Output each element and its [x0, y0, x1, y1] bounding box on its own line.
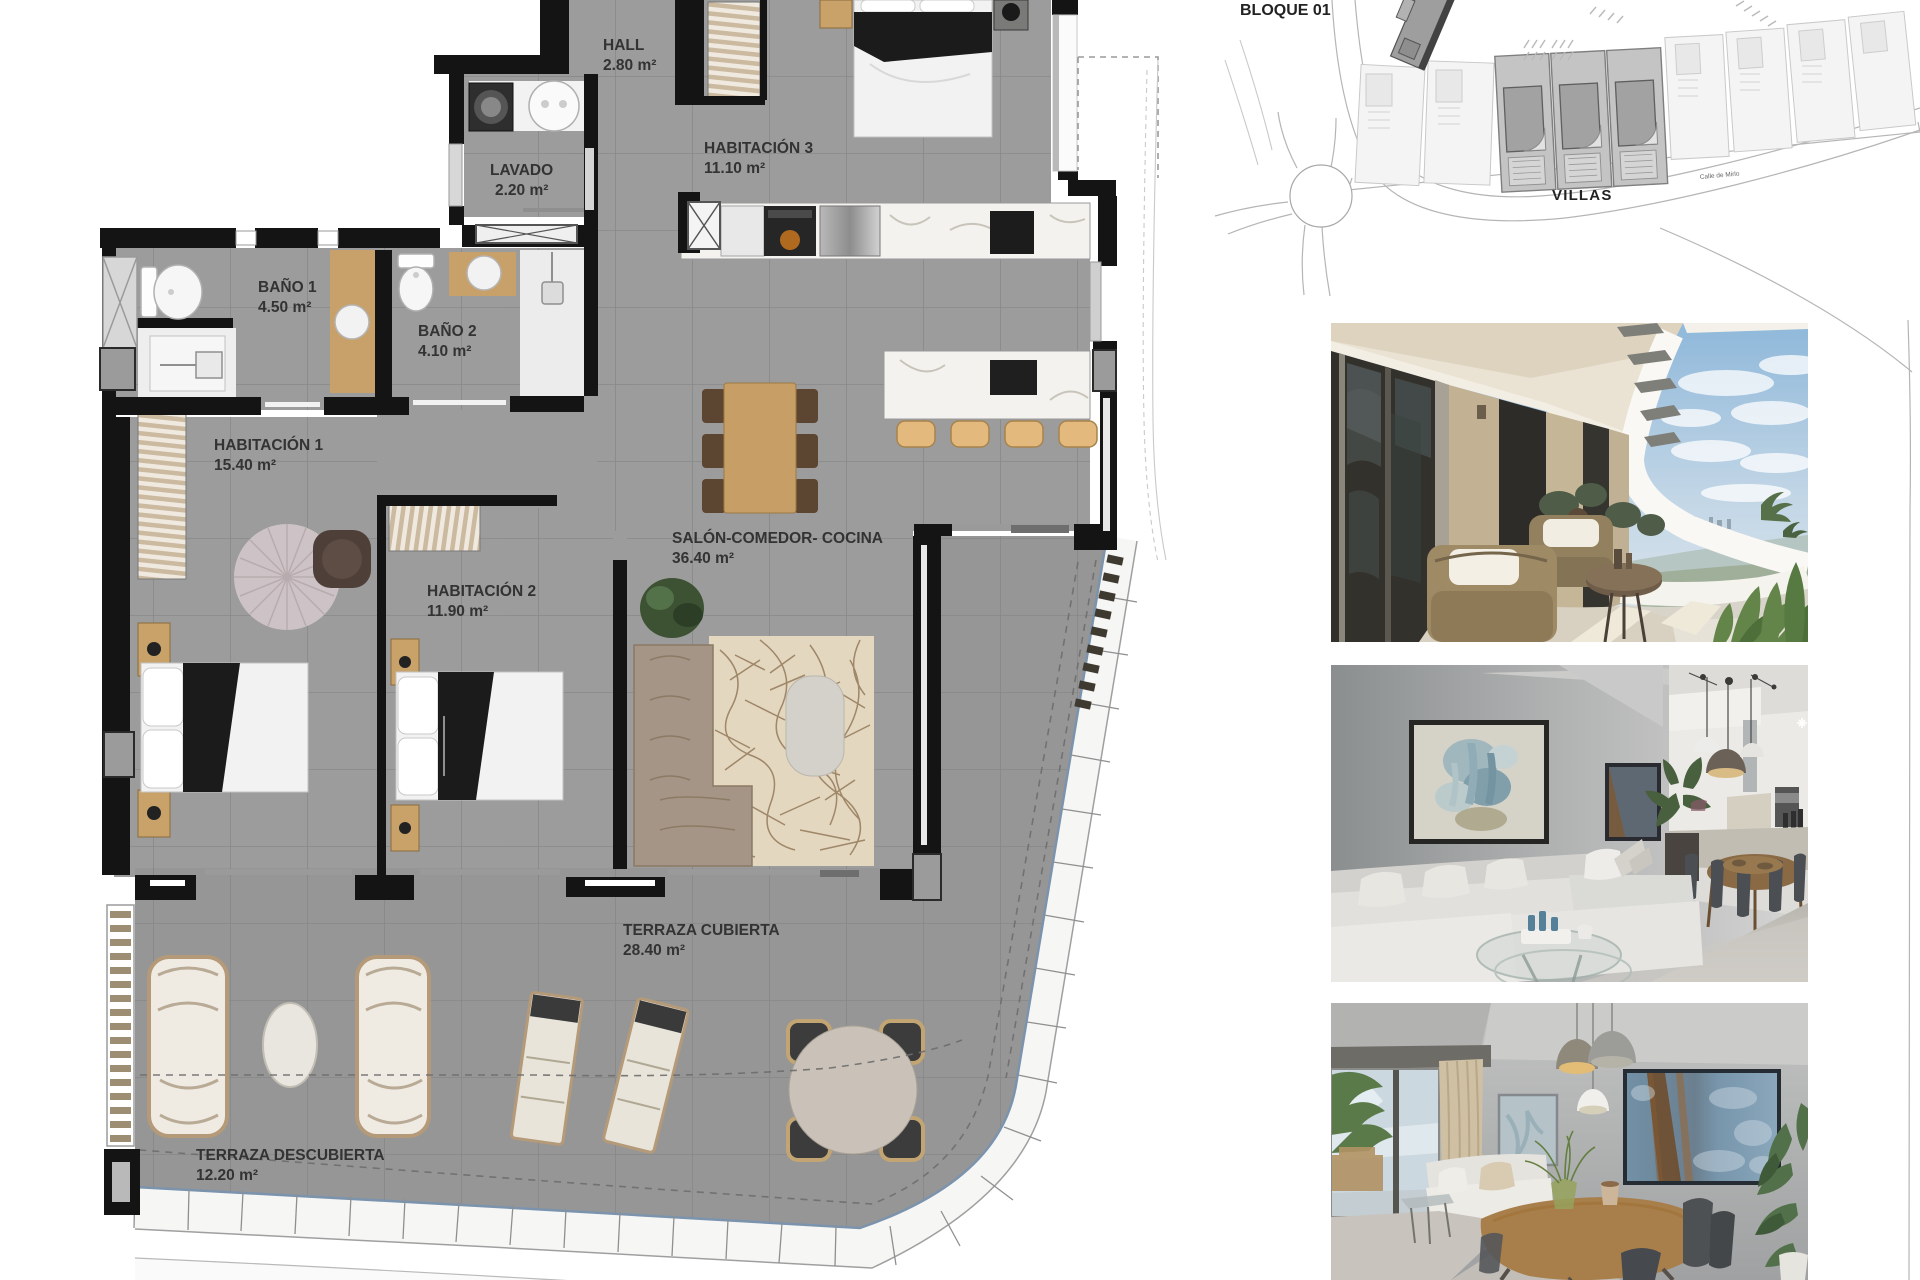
svg-text:TERRAZA CUBIERTA: TERRAZA CUBIERTA: [623, 922, 780, 939]
svg-text:BAÑO 1: BAÑO 1: [258, 278, 317, 296]
svg-text:28.40 m²: 28.40 m²: [623, 942, 685, 959]
svg-text:HABITACIÓN 1: HABITACIÓN 1: [214, 436, 323, 454]
svg-text:4.50 m²: 4.50 m²: [258, 299, 311, 316]
svg-text:2.20 m²: 2.20 m²: [495, 182, 548, 199]
svg-text:36.40 m²: 36.40 m²: [672, 550, 734, 567]
svg-text:11.10 m²: 11.10 m²: [704, 160, 765, 177]
svg-text:TERRAZA DESCUBIERTA: TERRAZA DESCUBIERTA: [196, 1147, 385, 1164]
svg-text:15.40 m²: 15.40 m²: [214, 457, 276, 474]
svg-text:BAÑO 2: BAÑO 2: [418, 322, 477, 340]
svg-text:HALL: HALL: [603, 37, 644, 54]
svg-text:BLOQUE 01: BLOQUE 01: [1240, 2, 1331, 19]
svg-text:2.80 m²: 2.80 m²: [603, 57, 656, 74]
svg-text:4.10 m²: 4.10 m²: [418, 343, 471, 360]
svg-text:11.90 m²: 11.90 m²: [427, 603, 488, 620]
svg-text:SALÓN-COMEDOR- COCINA: SALÓN-COMEDOR- COCINA: [672, 529, 883, 547]
svg-text:VILLAS: VILLAS: [1552, 187, 1613, 204]
svg-text:LAVADO: LAVADO: [490, 162, 553, 179]
svg-text:12.20 m²: 12.20 m²: [196, 1167, 258, 1184]
svg-text:HABITACIÓN 2: HABITACIÓN 2: [427, 582, 536, 600]
svg-text:HABITACIÓN 3: HABITACIÓN 3: [704, 139, 813, 157]
